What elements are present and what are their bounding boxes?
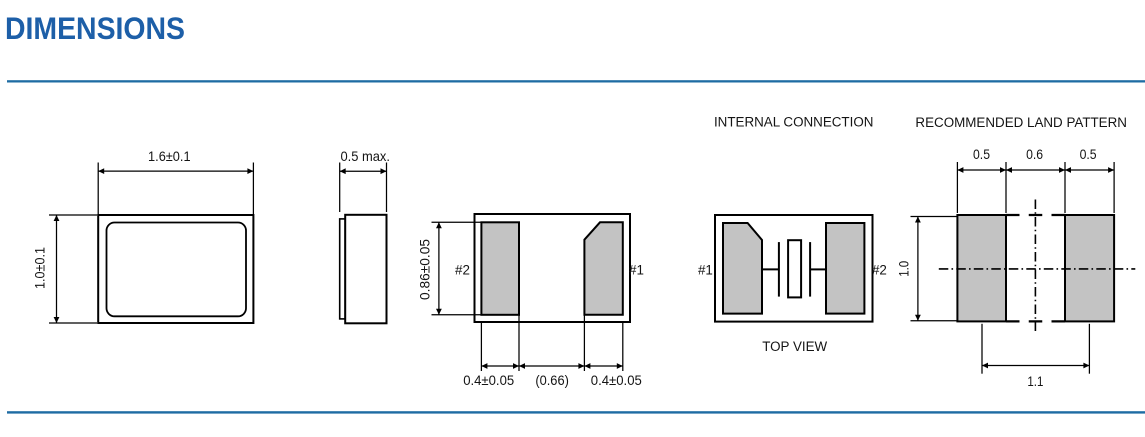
svg-text:DIMENSIONS: DIMENSIONS [5, 10, 185, 46]
svg-text:0.86±0.05: 0.86±0.05 [416, 239, 432, 300]
svg-text:0.4±0.05: 0.4±0.05 [463, 372, 514, 388]
svg-text:0.5 max.: 0.5 max. [340, 148, 390, 164]
svg-text:1.0: 1.0 [896, 261, 912, 277]
svg-text:1.6±0.1: 1.6±0.1 [148, 148, 191, 164]
svg-text:RECOMMENDED LAND PATTERN: RECOMMENDED LAND PATTERN [915, 115, 1127, 130]
svg-text:#1: #1 [629, 263, 644, 278]
svg-text:#2: #2 [872, 263, 887, 278]
svg-text:(0.66): (0.66) [535, 372, 569, 388]
svg-text:0.6: 0.6 [1026, 146, 1043, 162]
svg-text:#1: #1 [698, 263, 713, 278]
svg-text:1.0±0.1: 1.0±0.1 [32, 247, 48, 289]
svg-text:0.4±0.05: 0.4±0.05 [591, 372, 642, 388]
svg-text:0.5: 0.5 [1080, 146, 1097, 162]
svg-text:#2: #2 [455, 263, 470, 278]
svg-text:1.1: 1.1 [1027, 373, 1043, 389]
svg-text:0.5: 0.5 [973, 146, 990, 162]
svg-text:INTERNAL CONNECTION: INTERNAL CONNECTION [714, 115, 873, 130]
svg-text:TOP VIEW: TOP VIEW [762, 339, 827, 354]
